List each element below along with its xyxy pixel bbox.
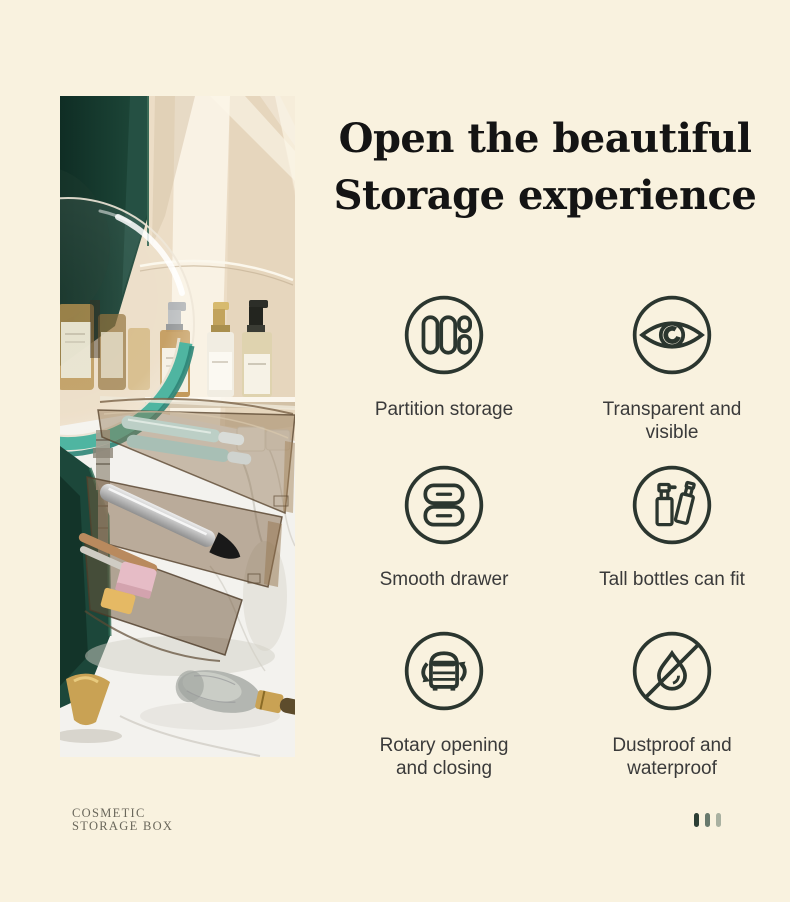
waterproof-icon <box>630 629 714 713</box>
rotary-icon <box>402 629 486 713</box>
page-title: Open the beautiful Storage experience <box>308 110 782 224</box>
feature-label: Smooth drawer <box>380 568 509 591</box>
partition-storage-icon <box>402 293 486 377</box>
feature-smooth-drawer: Smooth drawer <box>344 463 544 591</box>
feature-transparent-visible: Transparent andvisible <box>572 293 772 444</box>
title-line-2: Storage experience <box>308 167 782 224</box>
pagination-bar <box>694 813 699 827</box>
feature-rotary-opening: Rotary openingand closing <box>344 629 544 780</box>
feature-label: Dustproof andwaterproof <box>612 734 731 780</box>
feature-label: Rotary openingand closing <box>380 734 509 780</box>
pagination-bar <box>716 813 721 827</box>
title-line-1: Open the beautiful <box>308 110 782 167</box>
drawer-icon <box>402 463 486 547</box>
brand-text: COSMETIC STORAGE BOX <box>72 807 173 833</box>
feature-tall-bottles: Tall bottles can fit <box>572 463 772 591</box>
product-detail-page: Open the beautiful Storage experience Pa… <box>0 0 790 902</box>
pagination-bar <box>705 813 710 827</box>
feature-dustproof-waterproof: Dustproof andwaterproof <box>572 629 772 780</box>
bottles-icon <box>630 463 714 547</box>
pagination <box>694 813 721 827</box>
eye-icon <box>630 293 714 377</box>
product-photo <box>60 96 295 757</box>
feature-label: Tall bottles can fit <box>599 568 745 591</box>
feature-partition-storage: Partition storage <box>344 293 544 421</box>
feature-label: Transparent andvisible <box>603 398 742 444</box>
feature-label: Partition storage <box>375 398 513 421</box>
brand-line-2: STORAGE BOX <box>72 820 173 833</box>
